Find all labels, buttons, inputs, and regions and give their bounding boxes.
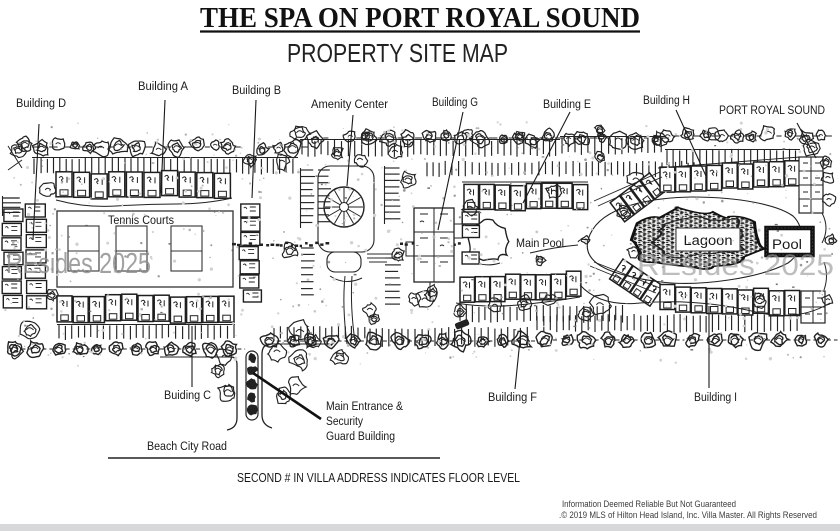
svg-text:Security: Security xyxy=(326,414,364,428)
svg-text:Building F: Building F xyxy=(488,390,537,404)
svg-text:Building B: Building B xyxy=(232,83,281,97)
svg-text:Building D: Building D xyxy=(16,96,66,110)
svg-text:Main Entrance &: Main Entrance & xyxy=(326,399,403,413)
svg-text:Guard Building: Guard Building xyxy=(326,429,395,443)
svg-text:REsides 2025: REsides 2025 xyxy=(6,248,151,280)
svg-text:Building E: Building E xyxy=(543,97,591,111)
svg-text:Building H: Building H xyxy=(643,93,690,107)
svg-text:PROPERTY SITE MAP: PROPERTY SITE MAP xyxy=(287,38,508,68)
svg-text:SECOND # IN VILLA ADDRESS INDI: SECOND # IN VILLA ADDRESS INDICATES FLOO… xyxy=(237,470,520,485)
svg-text:THE SPA ON PORT ROYAL SOUND: THE SPA ON PORT ROYAL SOUND xyxy=(200,2,640,34)
svg-text:.© 2019 MLS of Hilton Head Isl: .© 2019 MLS of Hilton Head Island, Inc. … xyxy=(559,510,817,520)
svg-text:Information Deemed Reliable Bu: Information Deemed Reliable But Not Guar… xyxy=(562,499,736,509)
svg-text:Building I: Building I xyxy=(694,390,737,404)
svg-text:PORT ROYAL SOUND: PORT ROYAL SOUND xyxy=(719,103,825,117)
svg-text:REsides 2025: REsides 2025 xyxy=(637,249,834,282)
svg-text:Building A: Building A xyxy=(138,79,189,93)
svg-text:Tennis Courts: Tennis Courts xyxy=(108,213,174,227)
svg-text:Amenity Center: Amenity Center xyxy=(311,97,388,111)
svg-text:Building G: Building G xyxy=(432,95,478,109)
svg-text:Beach City Road: Beach City Road xyxy=(147,439,227,453)
svg-text:Lagoon: Lagoon xyxy=(684,233,733,248)
svg-text:Buiding C: Buiding C xyxy=(164,388,211,402)
